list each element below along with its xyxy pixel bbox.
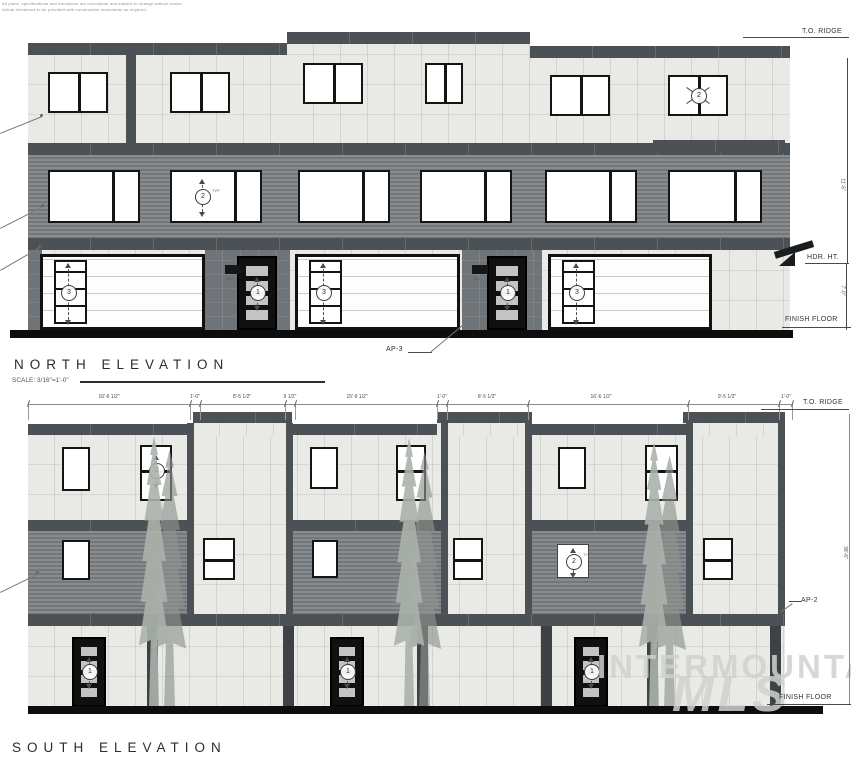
south-roof-fascia xyxy=(532,424,688,435)
window xyxy=(312,540,338,578)
south-to-ridge-line xyxy=(761,409,849,410)
entry-door-keynote-arrow-up xyxy=(254,274,260,282)
window-keynote: 2 xyxy=(195,189,211,205)
north-dim-lower: 7'-0" xyxy=(839,286,844,296)
north-finish-floor-label: FINISH FLOOR xyxy=(785,316,838,324)
window xyxy=(298,170,390,223)
garage-door-keynote: 3 xyxy=(316,285,332,301)
window-mullion xyxy=(444,64,447,103)
south-tower-fascia xyxy=(437,412,532,423)
dimension-drop-line xyxy=(437,404,438,420)
window-mullion xyxy=(78,73,81,112)
window xyxy=(703,538,733,580)
tree xyxy=(381,438,453,708)
porch-post xyxy=(541,626,552,706)
dimension-drop-line xyxy=(285,404,286,420)
ap2-leader xyxy=(789,601,801,602)
garage-door-keynote-arrow-up xyxy=(573,260,579,268)
window xyxy=(203,538,235,580)
title-underline xyxy=(80,381,325,383)
typ-mark: TYP xyxy=(583,552,591,557)
north-roof-fascia xyxy=(287,32,530,44)
entry-door-keynote-arrow-down xyxy=(86,684,92,692)
north-dim-line-upper xyxy=(847,58,848,264)
entry-door-keynote-arrow-up xyxy=(344,654,350,662)
dimension-drop-line xyxy=(688,404,689,420)
dimension-drop-line xyxy=(200,404,201,420)
window xyxy=(48,170,140,223)
south-wall-trim xyxy=(778,423,785,614)
dimension-drop-line xyxy=(190,404,191,420)
window-mullion xyxy=(112,171,115,222)
dimension-drop-line xyxy=(295,404,296,420)
garage-door-keynote-arrow-down xyxy=(320,320,326,328)
south-tower-wall xyxy=(683,423,785,436)
south-finish-floor-line xyxy=(767,704,851,705)
south-dim-line xyxy=(28,404,792,405)
north-dim-line-lower xyxy=(846,264,847,330)
window-keynote-arrow-up xyxy=(199,176,205,184)
window-keynote-arrow-up xyxy=(570,545,576,553)
south-height-dim-line xyxy=(849,414,850,704)
address-plaque xyxy=(225,265,241,274)
dimension-label: 1'-0" xyxy=(190,394,200,400)
porch-post xyxy=(283,626,294,706)
window xyxy=(558,447,586,489)
north-roof-fascia xyxy=(28,43,287,55)
window-keynote: 2 xyxy=(566,554,582,570)
window-rail xyxy=(704,559,732,562)
window-keynote-arrow-down xyxy=(199,212,205,220)
north-elevation-title: NORTH ELEVATION xyxy=(14,357,229,372)
window xyxy=(170,72,230,113)
dimension-label: 16'-6 1/2" xyxy=(98,394,119,400)
garage-door-keynote-arrow-down xyxy=(65,320,71,328)
south-tower-wall xyxy=(193,423,292,436)
dimension-label: 1'-0" xyxy=(781,394,791,400)
leader-dot xyxy=(40,114,43,117)
entry-door-keynote: 1 xyxy=(82,664,98,680)
window xyxy=(668,170,762,223)
south-finish-floor-label: FINISH FLOOR xyxy=(779,694,832,702)
address-number: 123 xyxy=(473,276,480,281)
leader-dot xyxy=(38,245,41,248)
entry-door-keynote: 1 xyxy=(340,664,356,680)
north-finish-floor-line xyxy=(782,327,851,328)
window-mullion xyxy=(200,73,203,112)
south-tower-fascia xyxy=(193,412,292,423)
north-dim-upper: 11'-6" xyxy=(840,178,845,190)
north-ground-line xyxy=(10,330,793,338)
dimension-drop-line xyxy=(447,404,448,420)
north-hdr-ht-label: HDR. HT. xyxy=(807,254,839,262)
north-floor-band xyxy=(653,140,785,153)
south-roof-fascia xyxy=(28,424,193,435)
window-mullion xyxy=(734,171,737,222)
garage-door-keynote-arrow-up xyxy=(320,260,326,268)
north-ap3-label: AP-3 xyxy=(386,346,403,354)
dimension-drop-line xyxy=(28,404,29,420)
window xyxy=(303,63,363,104)
dimension-drop-line xyxy=(792,404,793,420)
north-to-ridge-label: T.O. RIDGE xyxy=(802,28,842,36)
south-roof-fascia xyxy=(292,424,437,435)
ap3-leader xyxy=(408,352,432,353)
watermark-mls: MLS xyxy=(672,665,790,723)
south-height-dim: 38'-6" xyxy=(842,546,847,559)
disclaimer-line: All plans, specifications and elevations… xyxy=(2,1,183,6)
window xyxy=(420,170,512,223)
window xyxy=(310,447,338,489)
window-keynote-arrow-down xyxy=(570,573,576,581)
garage-door-keynote: 3 xyxy=(61,285,77,301)
window xyxy=(170,170,262,223)
window xyxy=(425,63,463,104)
entry-door-keynote-arrow-down xyxy=(588,684,594,692)
south-wall-trim xyxy=(286,423,293,614)
north-roof-fascia xyxy=(530,46,790,58)
window-rail xyxy=(454,559,482,562)
dimension-label: 9'-5 1/2" xyxy=(718,394,736,400)
south-elevation-title: SOUTH ELEVATION xyxy=(12,740,227,755)
address-plaque xyxy=(472,265,488,274)
leader-dot xyxy=(41,204,44,207)
window-mullion xyxy=(234,171,237,222)
window-rail xyxy=(204,559,234,562)
entry-door-keynote-arrow-down xyxy=(344,684,350,692)
dimension-label: 16'-6 1/2" xyxy=(590,394,611,400)
dimension-label: 15'-9 1/2" xyxy=(346,394,367,400)
window xyxy=(545,170,637,223)
north-hdr-ht-line xyxy=(805,263,849,264)
entry-door-keynote-arrow-up xyxy=(504,274,510,282)
dimension-drop-line xyxy=(528,404,529,420)
dimension-label: 8'-5 1/2" xyxy=(478,394,496,400)
window xyxy=(62,540,90,580)
disclaimer-line: Actual elevations to be provided with co… xyxy=(2,7,147,12)
tree xyxy=(126,436,198,708)
window-mullion xyxy=(362,171,365,222)
typ-mark: TYP xyxy=(212,188,220,193)
south-ap2-label: AP-2 xyxy=(801,597,818,605)
window xyxy=(550,75,610,116)
window-mullion xyxy=(484,171,487,222)
leader-dot xyxy=(36,571,39,574)
window-keynote: 2 xyxy=(691,88,707,104)
window-mullion xyxy=(580,76,583,115)
north-scale-note: SCALE: 3/16"=1'-0" xyxy=(12,378,69,385)
elevation-drawing-sheet: All plans, specifications and elevations… xyxy=(0,0,851,764)
window xyxy=(453,538,483,580)
garage-door-keynote-arrow-up xyxy=(65,260,71,268)
entry-door-keynote-arrow-up xyxy=(588,654,594,662)
dimension-label: 1'-0" xyxy=(437,394,447,400)
entry-door-keynote-arrow-up xyxy=(86,654,92,662)
entry-door-keynote: 1 xyxy=(250,285,266,301)
dimension-drop-line xyxy=(779,404,780,420)
south-tower-wall xyxy=(437,423,532,436)
dimension-label: 9 1/2" xyxy=(284,394,297,400)
window-mullion xyxy=(609,171,612,222)
south-wall-trim xyxy=(525,423,532,614)
south-tower-fascia xyxy=(683,412,785,423)
window xyxy=(48,72,108,113)
north-wall-trim xyxy=(126,43,136,144)
dimension-label: 8'-5 1/2" xyxy=(233,394,251,400)
garage-door-keynote-arrow-down xyxy=(573,320,579,328)
entry-door-keynote-arrow-down xyxy=(504,306,510,314)
entry-door-keynote: 1 xyxy=(500,285,516,301)
address-number: 123 xyxy=(226,276,233,281)
garage-door-keynote: 3 xyxy=(569,285,585,301)
window xyxy=(62,447,90,491)
window-mullion xyxy=(333,64,336,103)
south-to-ridge-label: T.O. RIDGE xyxy=(803,399,843,407)
north-to-ridge-line xyxy=(743,37,849,38)
entry-door-keynote-arrow-down xyxy=(254,306,260,314)
